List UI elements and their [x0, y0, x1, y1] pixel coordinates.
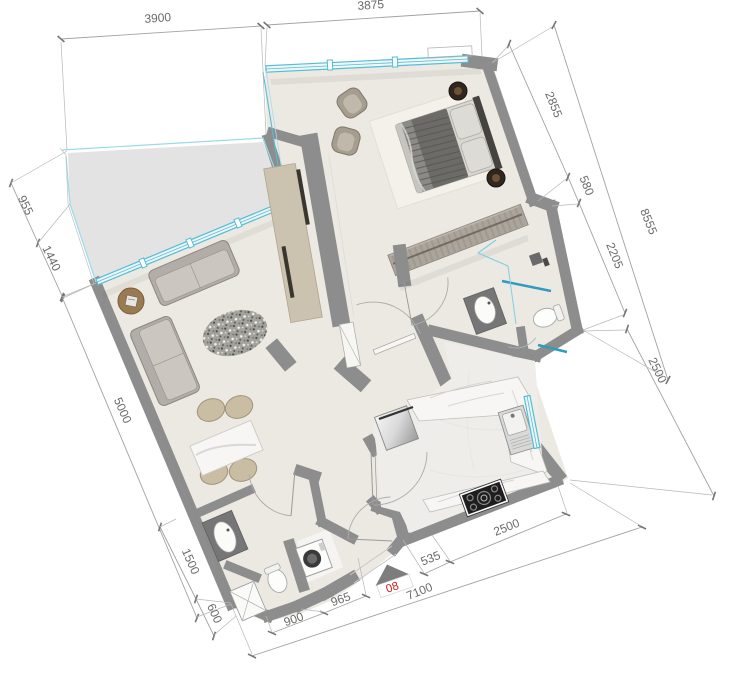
svg-text:3875: 3875: [357, 0, 385, 13]
svg-text:3900: 3900: [144, 10, 172, 26]
